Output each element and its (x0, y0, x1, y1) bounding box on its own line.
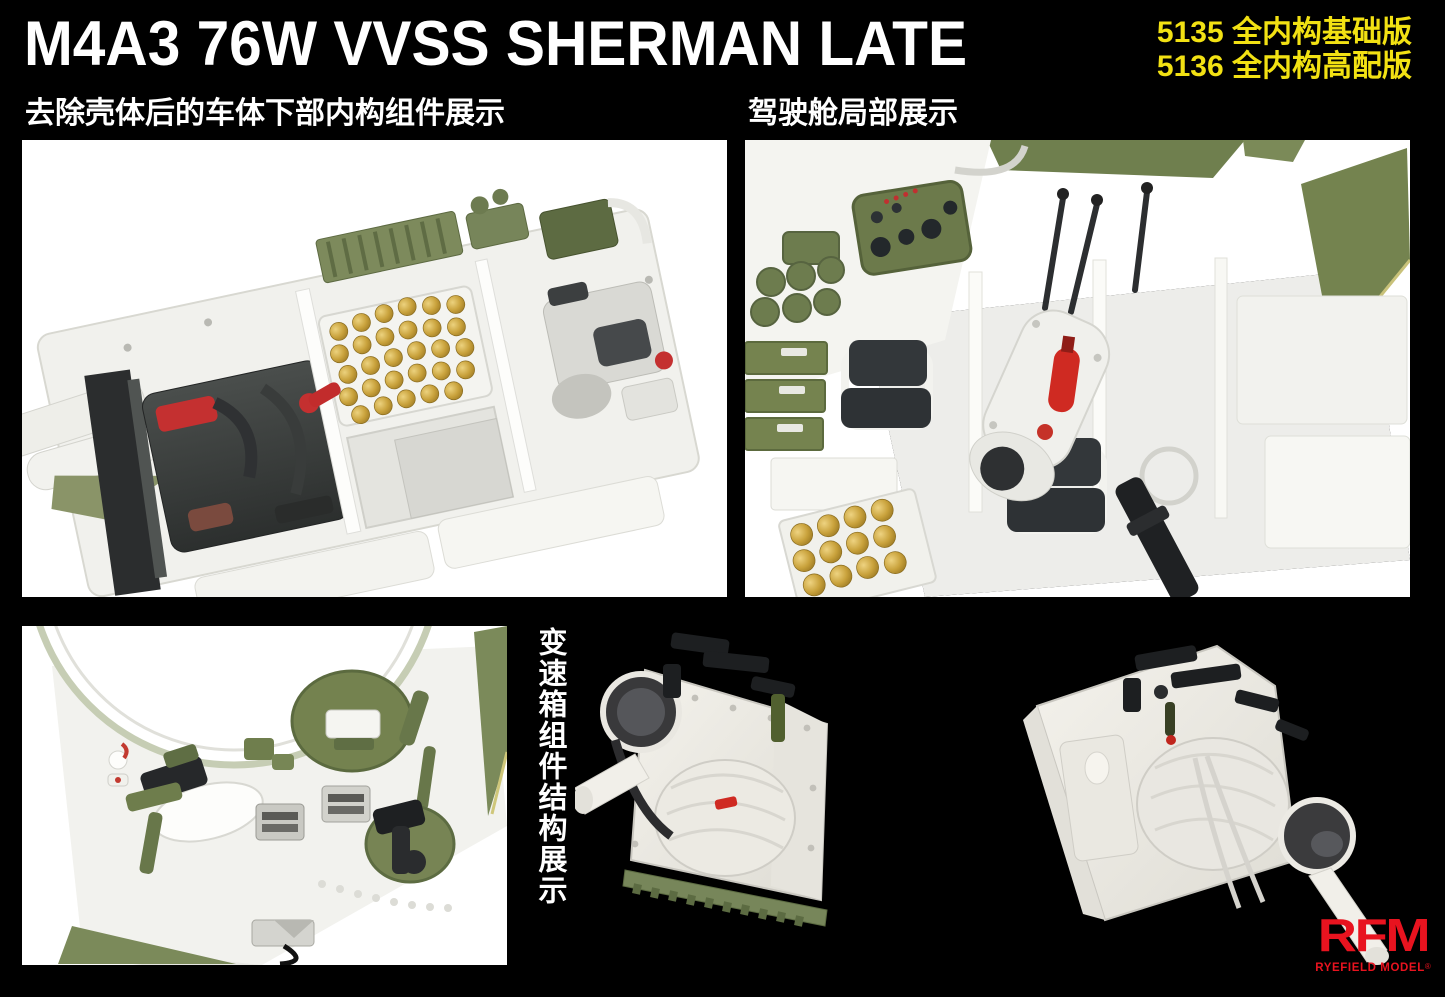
transmission-assembly-renders (575, 628, 1425, 983)
caption-transmission-vertical: 变速箱组件结构展示 (529, 627, 571, 892)
rfm-logo: RFM RYEFIELD MODEL® (1310, 912, 1436, 976)
page-title: M4A3 76W VVSS SHERMAN LATE (24, 8, 967, 80)
poster-page: M4A3 76W VVSS SHERMAN LATE 5135 全内构基础版 5… (0, 0, 1445, 997)
rfm-logo-abbr: RFM (1299, 912, 1445, 958)
transmission-render-area (575, 628, 1425, 983)
hull-lower-interior-render (22, 140, 727, 597)
caption-driver-compartment: 驾驶舱局部展示 (748, 88, 958, 132)
transmission-left-render (575, 632, 827, 927)
product-code-line-1: 5135 全内构基础版 (1157, 16, 1412, 50)
driver-compartment-render-panel (745, 140, 1410, 597)
caption-hull-lower: 去除壳体后的车体下部内构组件展示 (25, 88, 505, 132)
rfm-logo-name: RYEFIELD MODEL (1315, 962, 1425, 974)
product-codes: 5135 全内构基础版 5136 全内构高配版 (1157, 16, 1412, 84)
upper-hull-underside-render (22, 626, 507, 965)
driver-compartment-render (745, 140, 1410, 597)
registered-mark: ® (1425, 962, 1431, 971)
upper-hull-render-panel (22, 626, 507, 965)
product-code-line-2: 5136 全内构高配版 (1157, 50, 1412, 84)
hull-lower-render-panel (22, 140, 727, 597)
